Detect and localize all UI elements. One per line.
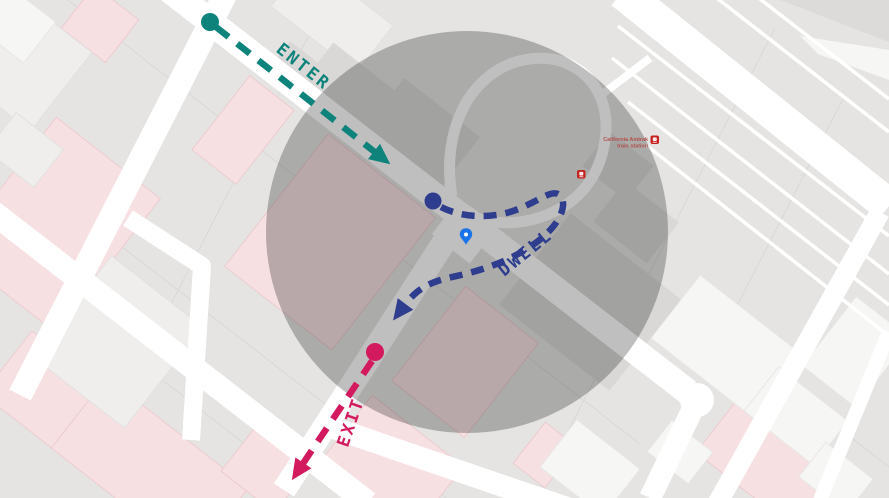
- transit-icon-glyph: [653, 142, 657, 143]
- transit-icon-glyph: [653, 137, 657, 141]
- transit-station-icon[interactable]: [577, 170, 586, 179]
- dwell-start-dot: [425, 193, 442, 210]
- transit-icon-glyph: [579, 172, 583, 176]
- station-label-line2: train station: [617, 144, 648, 150]
- exit-start-dot: [366, 343, 384, 361]
- transit-station-icon[interactable]: [651, 136, 660, 145]
- station-label-line1: California Amtrak: [603, 137, 648, 143]
- map-canvas: California Amtrak train station ENTER DW…: [0, 0, 889, 498]
- map-stage: California Amtrak train station ENTER DW…: [0, 0, 889, 498]
- transit-icon-glyph: [579, 176, 583, 177]
- map-pin-dot: [464, 233, 468, 237]
